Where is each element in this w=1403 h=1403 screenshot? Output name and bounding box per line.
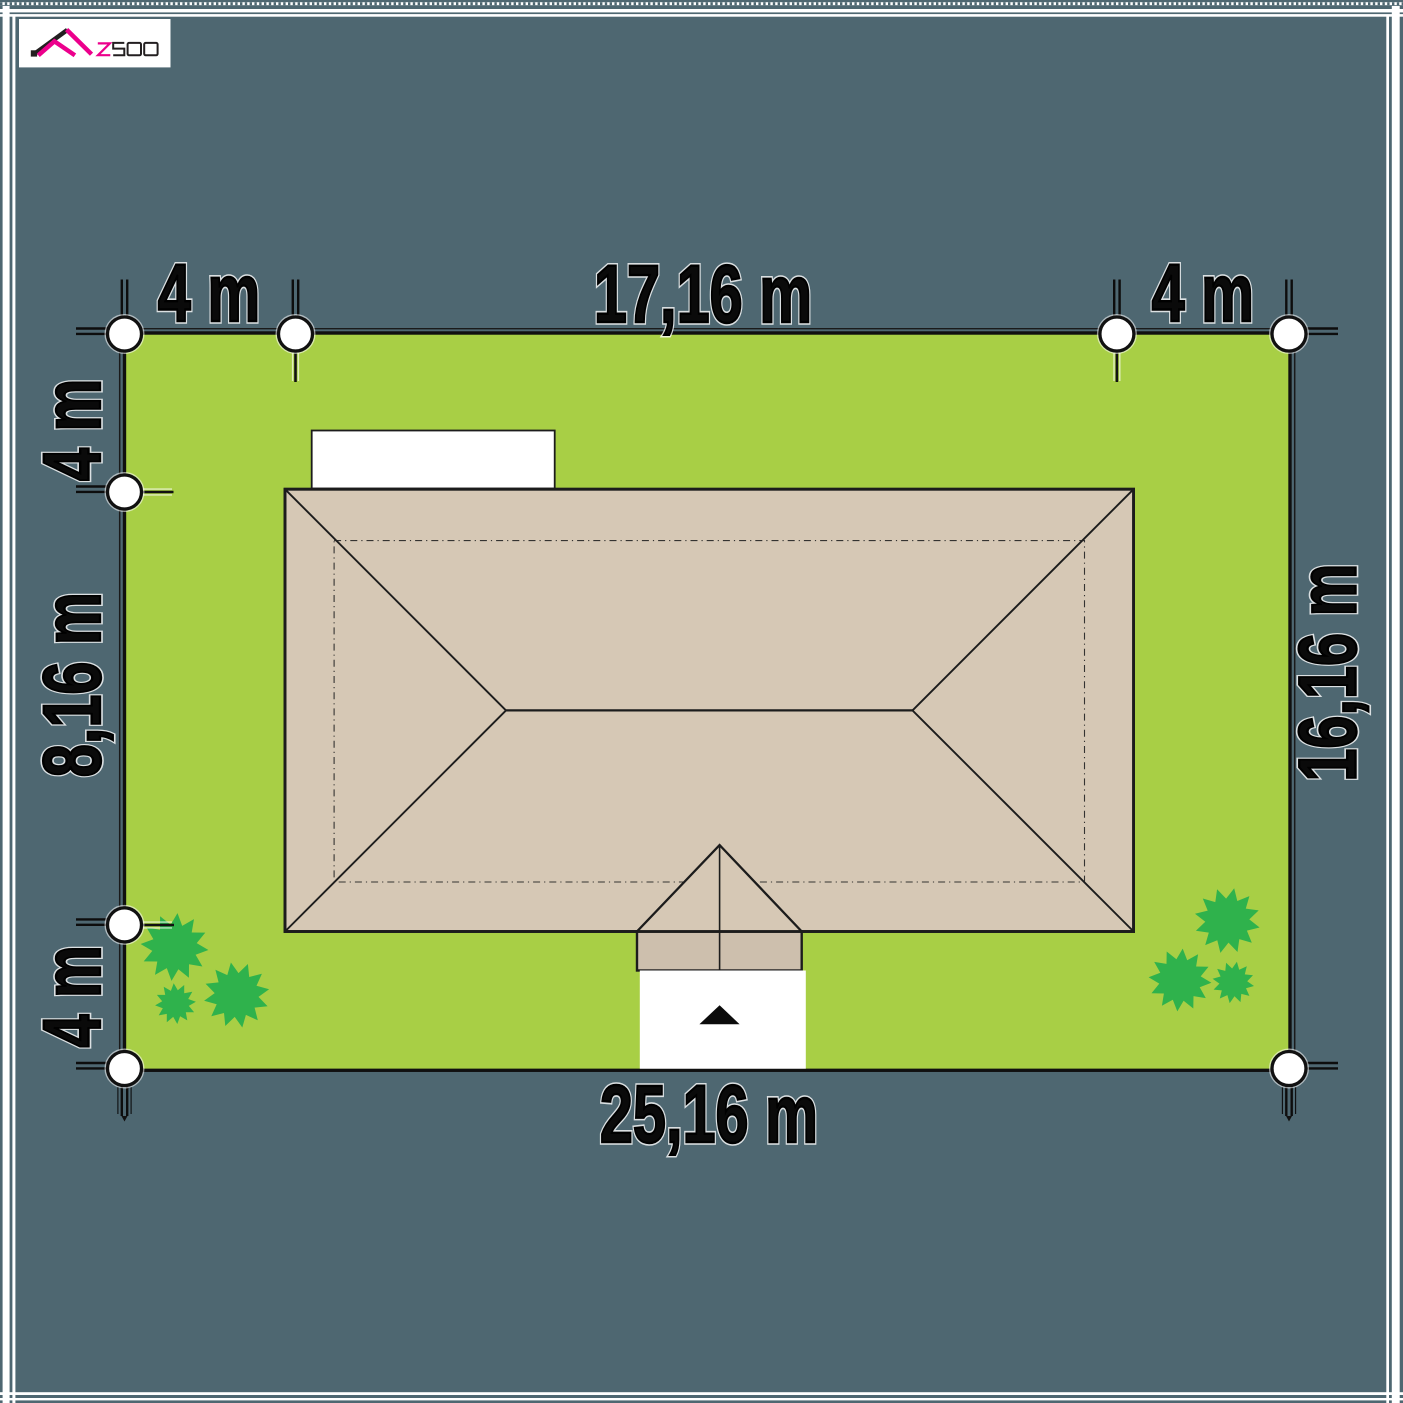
svg-text:4 m: 4 m — [27, 945, 119, 1047]
svg-text:25,16 m: 25,16 m — [600, 1069, 818, 1161]
svg-text:17,16 m: 17,16 m — [594, 249, 812, 341]
svg-text:16,16 m: 16,16 m — [1282, 564, 1374, 782]
svg-text:4 m: 4 m — [158, 248, 260, 340]
svg-text:8,16 m: 8,16 m — [27, 592, 119, 777]
svg-text:4 m: 4 m — [27, 379, 119, 481]
svg-text:4 m: 4 m — [1152, 248, 1254, 340]
